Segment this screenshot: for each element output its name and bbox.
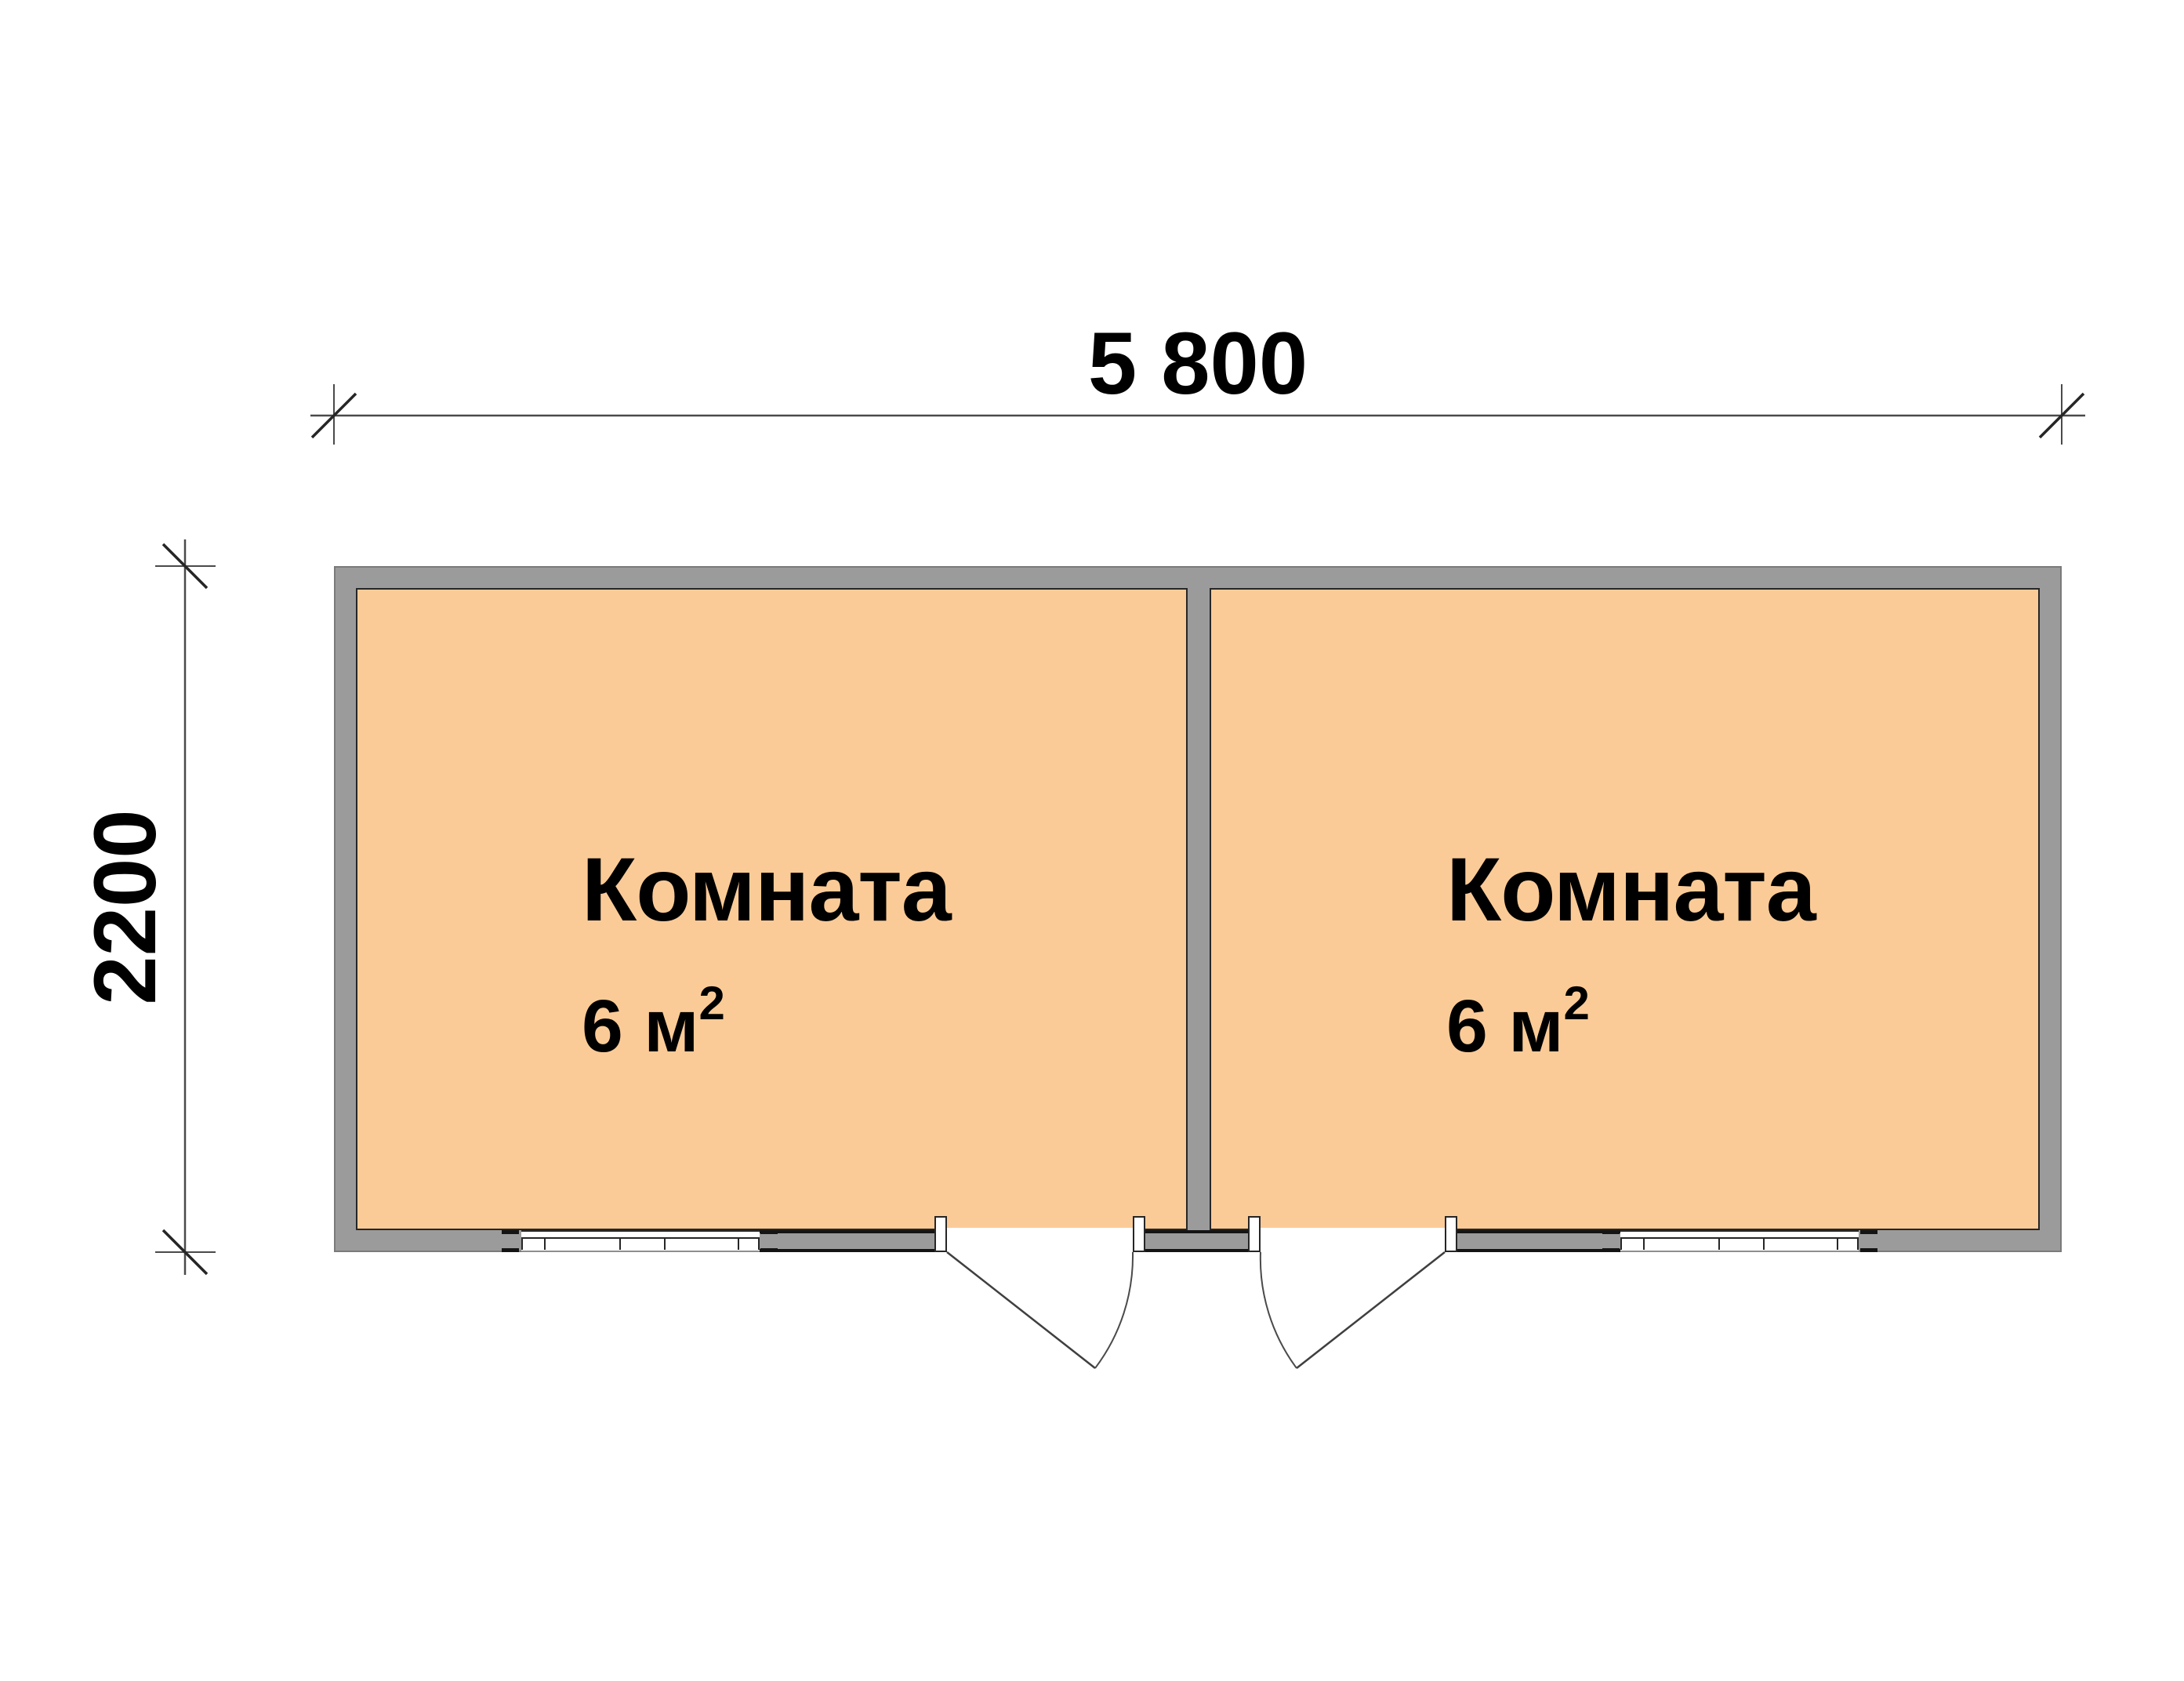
wall-end-cap (1602, 1230, 1620, 1234)
room-left-name: Комната (582, 845, 951, 935)
dimension-tick (312, 394, 356, 437)
window-right-frame-line (1643, 1237, 1645, 1250)
door-left-jamb-strike (1133, 1216, 1145, 1252)
floor-plan-canvas: 5 800 2200 Комната 6 м2 Комната 6 м2 (0, 0, 2184, 1681)
window-left-frame-line (544, 1237, 546, 1250)
room-left-area-value: 6 м (582, 985, 699, 1068)
window-right-frame-line (1620, 1237, 1622, 1250)
wall-segment-between-doors (1145, 1230, 1248, 1252)
wall-segment-between-window-and-door-left (760, 1230, 934, 1252)
window-left-frame-line (738, 1237, 739, 1250)
door-left-opening (947, 1228, 1133, 1252)
room-right-area-value: 6 м (1446, 985, 1564, 1068)
wall-end-cap (1602, 1248, 1620, 1252)
door-right-jamb-hinge (1445, 1216, 1457, 1252)
door-right-opening (1261, 1228, 1445, 1252)
wall-end-cap (760, 1248, 778, 1252)
dimension-tick (2040, 394, 2084, 437)
wall-end-cap (1860, 1230, 1877, 1234)
wall-end-cap (1860, 1248, 1877, 1252)
window-right-frame-line (1718, 1237, 1720, 1250)
wall-segment-between-door-and-window-right (1457, 1230, 1620, 1252)
door-left-jamb-hinge (934, 1216, 947, 1252)
room-left-area-sup: 2 (699, 977, 725, 1029)
window-left-frame-line (619, 1237, 621, 1250)
door-left-swing-arc (1095, 1252, 1133, 1368)
room-right-name: Комната (1446, 845, 1816, 935)
window-left (521, 1230, 760, 1252)
room-left-area: 6 м2 (582, 989, 725, 1064)
wall-end-cap (502, 1248, 519, 1252)
door-left-leaf (947, 1252, 1095, 1368)
window-left-frame-line (664, 1237, 666, 1250)
wall-end-cap (760, 1230, 778, 1234)
window-right-glass-line (1620, 1237, 1859, 1239)
window-right-frame-line (1837, 1237, 1838, 1250)
room-right-area: 6 м2 (1446, 989, 1590, 1064)
door-right-jamb-strike (1248, 1216, 1261, 1252)
window-right-frame-line (1763, 1237, 1765, 1250)
room-right-area-sup: 2 (1564, 977, 1590, 1029)
window-right (1620, 1230, 1859, 1252)
window-left-glass-line (521, 1237, 760, 1239)
dimension-tick (163, 1230, 207, 1274)
door-right-swing-arc (1261, 1252, 1297, 1368)
dimension-tick (163, 544, 207, 588)
dimension-width-label: 5 800 (1088, 320, 1308, 408)
door-right-leaf (1297, 1252, 1445, 1368)
window-left-frame-line (521, 1237, 523, 1250)
window-right-frame-line (1857, 1237, 1859, 1250)
dimension-height-label: 2200 (82, 809, 169, 1004)
wall-end-cap (502, 1230, 519, 1234)
